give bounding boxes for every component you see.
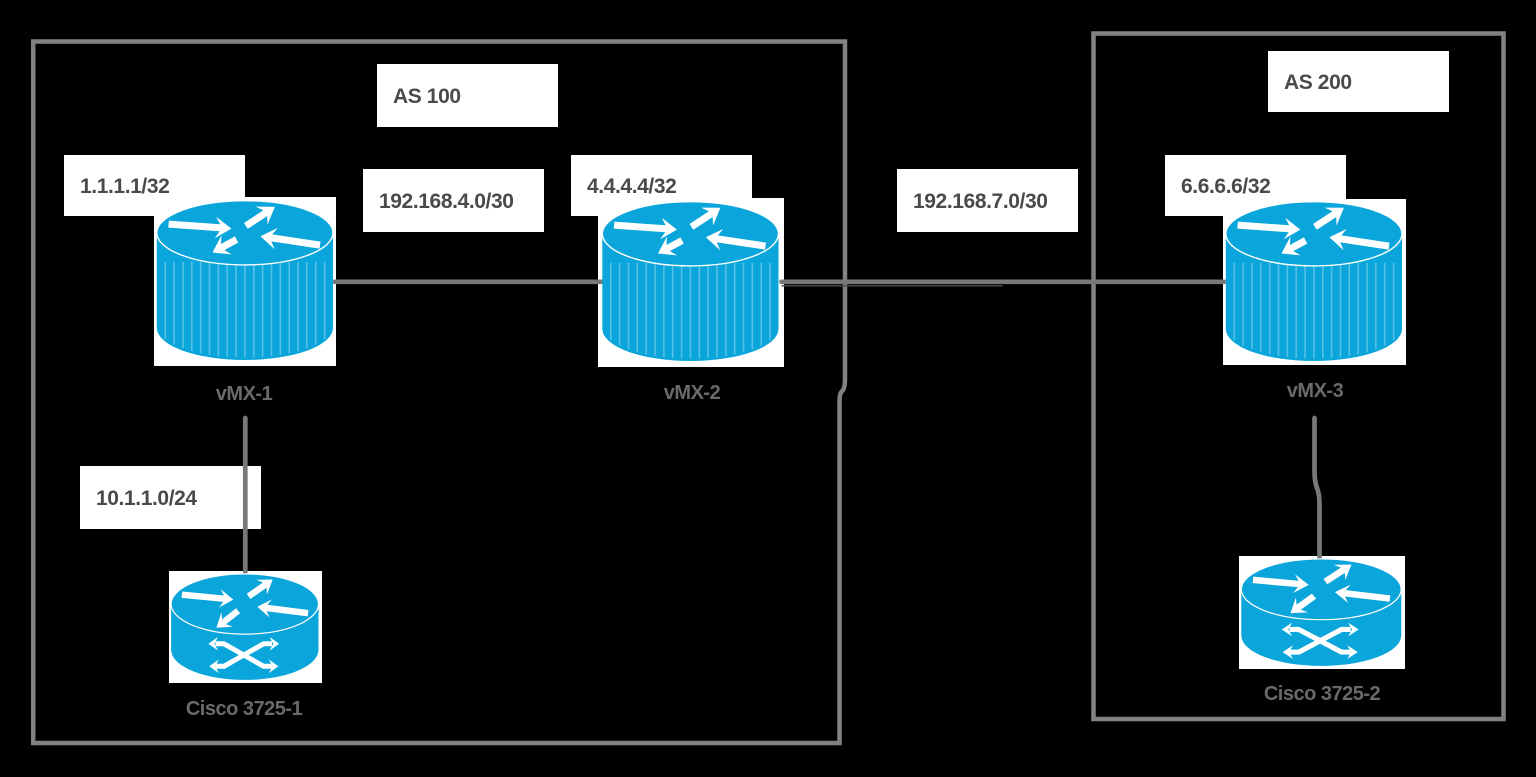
svg-text:AS 100: AS 100 [393,85,461,108]
svg-text:1.1.1.1/32: 1.1.1.1/32 [80,175,169,198]
svg-text:AS 200: AS 200 [1284,71,1352,94]
svg-text:Cisco 3725-1: Cisco 3725-1 [186,698,303,720]
svg-text:Cisco 3725-2: Cisco 3725-2 [1264,683,1381,705]
svg-text:4.4.4.4/32: 4.4.4.4/32 [587,175,676,198]
svg-text:6.6.6.6/32: 6.6.6.6/32 [1181,175,1270,198]
svg-text:192.168.7.0/30: 192.168.7.0/30 [913,190,1048,213]
svg-text:10.1.1.0/24: 10.1.1.0/24 [96,487,197,510]
svg-text:vMX-2: vMX-2 [664,382,721,404]
svg-text:192.168.4.0/30: 192.168.4.0/30 [379,190,514,213]
svg-text:vMX-1: vMX-1 [216,383,273,405]
svg-text:vMX-3: vMX-3 [1287,380,1344,402]
